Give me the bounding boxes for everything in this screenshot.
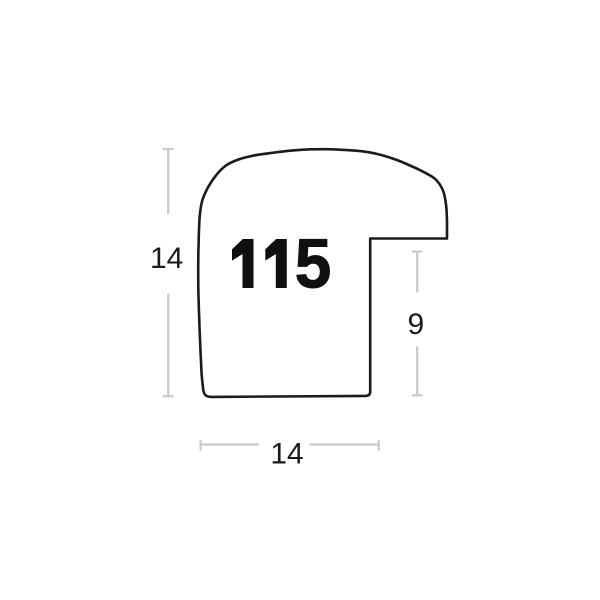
svg-text:9: 9 [407, 308, 424, 341]
svg-text:5: 5 [295, 226, 332, 303]
svg-text:14: 14 [150, 242, 183, 275]
svg-text:14: 14 [270, 437, 303, 470]
